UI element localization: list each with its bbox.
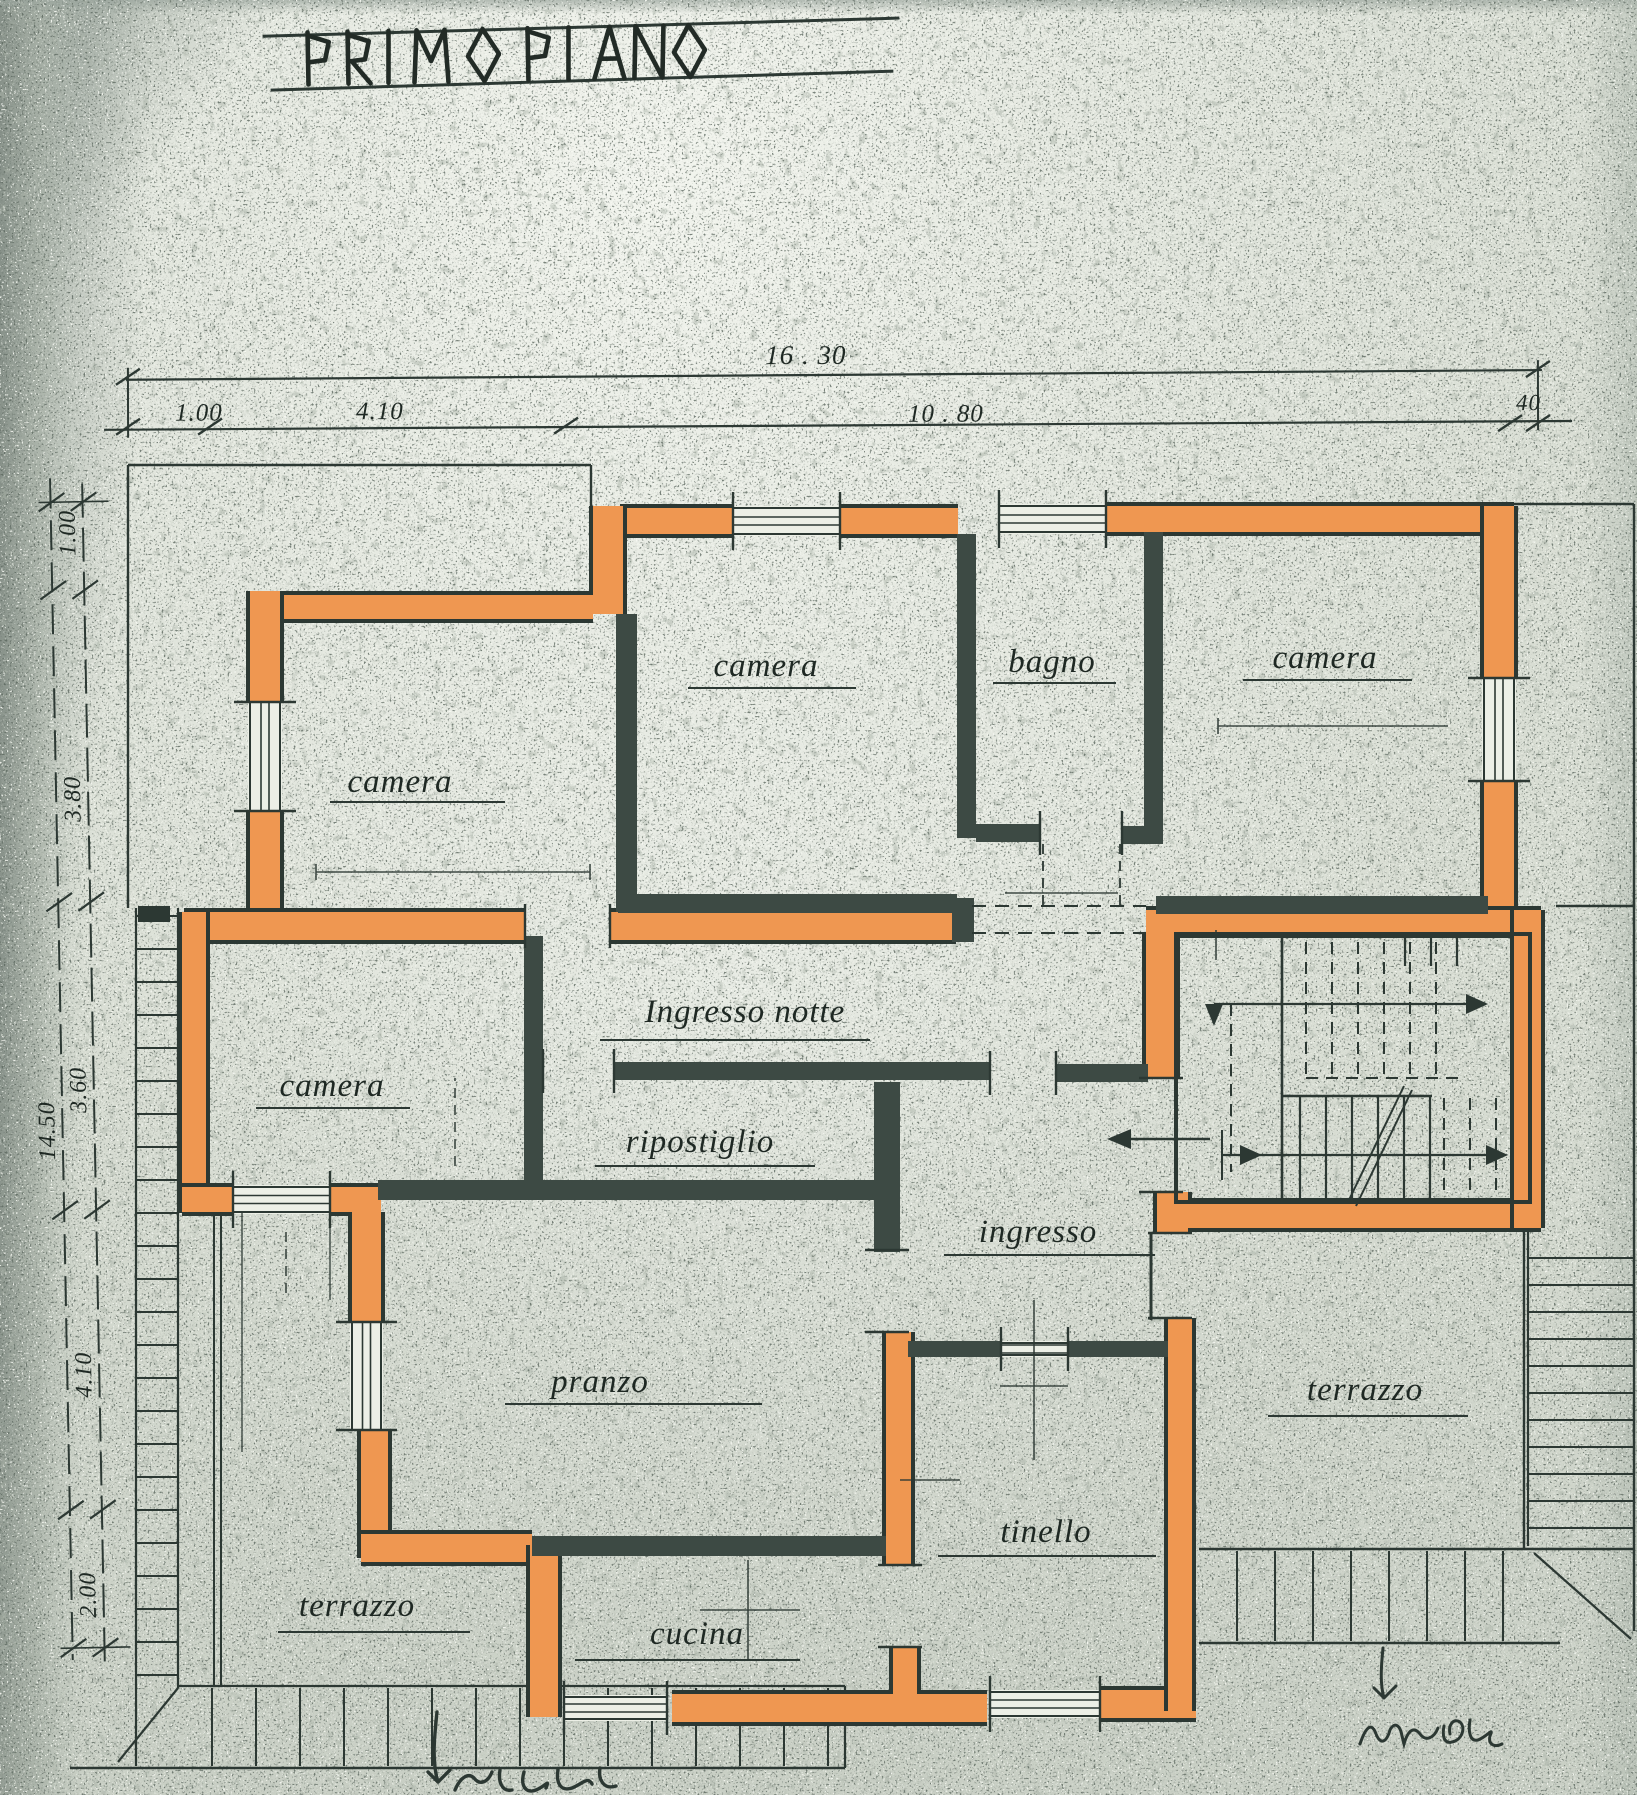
svg-text:3.80: 3.80 <box>60 776 87 823</box>
svg-text:1.00: 1.00 <box>175 400 223 427</box>
svg-text:1.00: 1.00 <box>55 510 82 556</box>
svg-text:camera: camera <box>280 1068 385 1104</box>
svg-text:bagno: bagno <box>1008 644 1096 680</box>
svg-text:4.10: 4.10 <box>71 1352 98 1398</box>
svg-text:ingresso: ingresso <box>979 1214 1098 1250</box>
svg-text:cucina: cucina <box>650 1616 744 1652</box>
svg-text:40: 40 <box>1516 390 1541 415</box>
svg-text:terrazzo: terrazzo <box>1307 1372 1423 1408</box>
svg-text:ripostiglio: ripostiglio <box>626 1124 775 1160</box>
svg-text:2.00: 2.00 <box>75 1571 102 1617</box>
svg-text:10 . 80: 10 . 80 <box>908 401 984 428</box>
svg-text:terrazzo: terrazzo <box>299 1588 415 1624</box>
svg-text:16 . 30: 16 . 30 <box>765 340 846 370</box>
svg-text:camera: camera <box>1273 640 1378 676</box>
svg-text:14.50: 14.50 <box>34 1101 61 1160</box>
svg-text:tinello: tinello <box>1000 1514 1091 1550</box>
svg-text:pranzo: pranzo <box>549 1364 649 1400</box>
svg-text:3.60: 3.60 <box>65 1067 92 1114</box>
svg-text:Ingresso notte: Ingresso notte <box>644 994 846 1030</box>
svg-text:camera: camera <box>348 764 453 800</box>
svg-text:camera: camera <box>714 648 819 684</box>
svg-text:4.10: 4.10 <box>356 398 404 425</box>
